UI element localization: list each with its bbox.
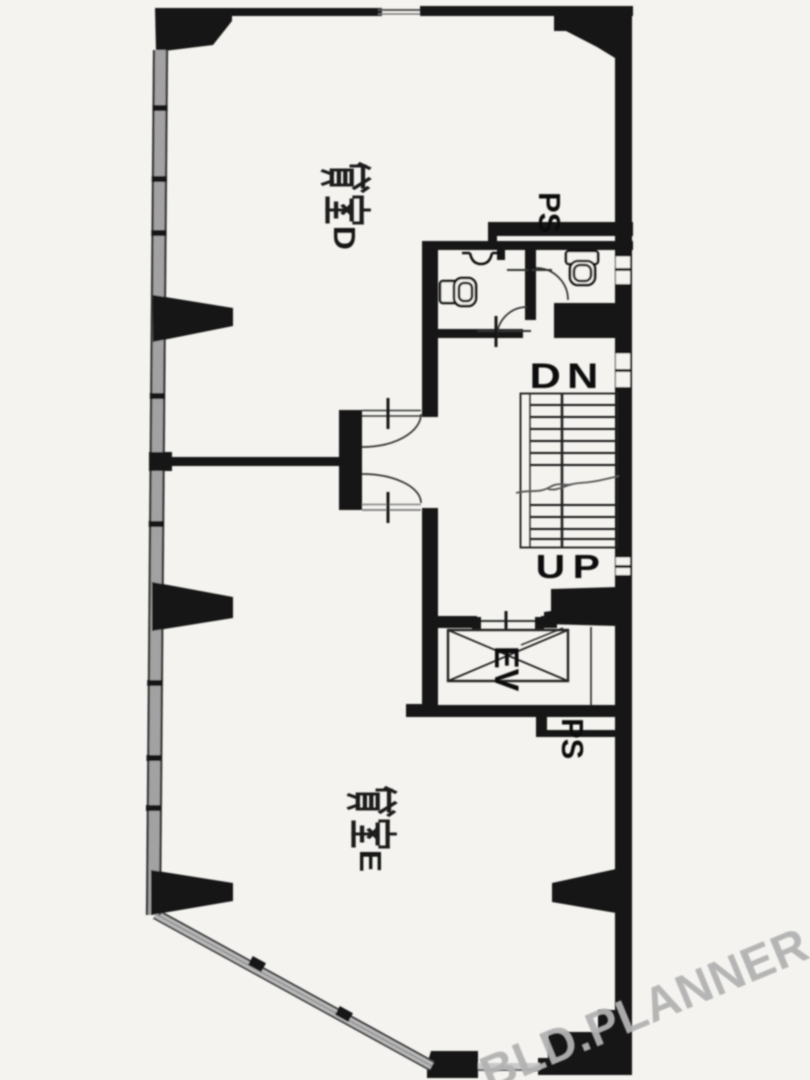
svg-text:PS: PS [532, 192, 567, 233]
svg-text:DN: DN [529, 357, 604, 396]
svg-text:E: E [353, 850, 388, 872]
svg-text:D: D [327, 226, 362, 250]
svg-text:EV: EV [487, 646, 525, 692]
svg-text:PS: PS [555, 718, 590, 759]
svg-text:UP: UP [536, 548, 608, 585]
